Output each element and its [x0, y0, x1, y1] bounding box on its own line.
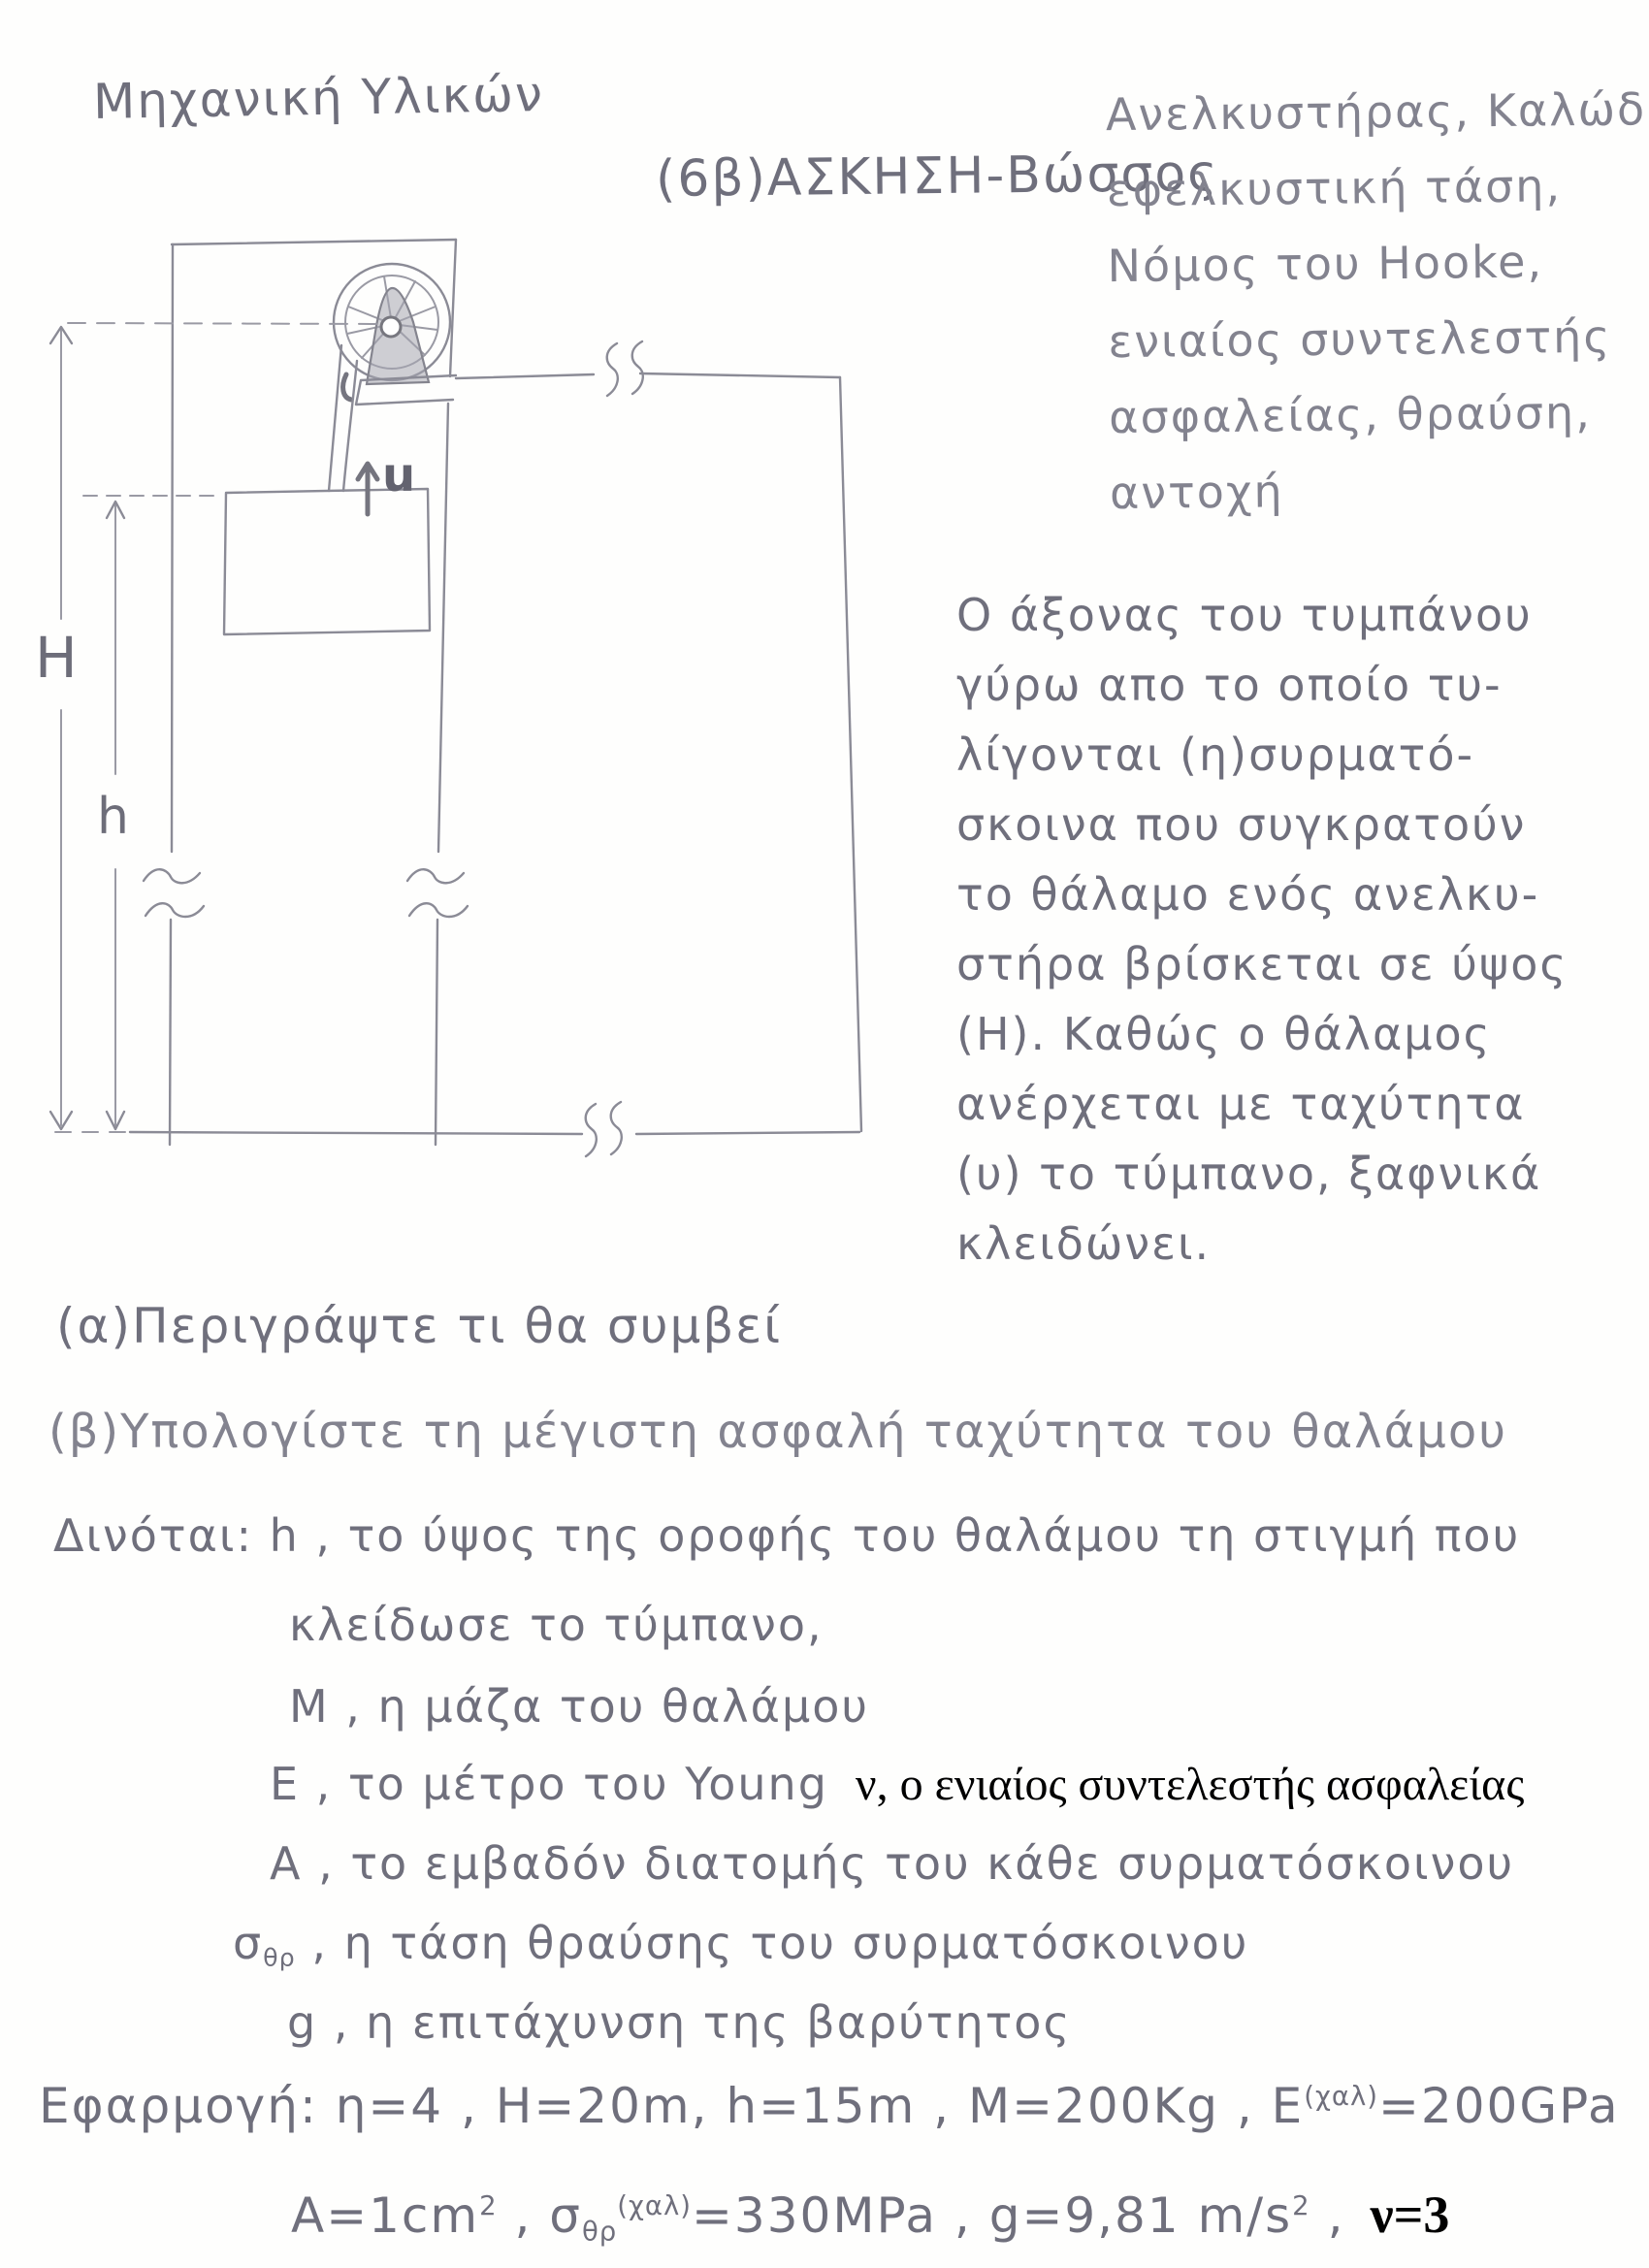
pulley-bracket — [367, 288, 429, 384]
sigma-description: , η τάση θραύσης του συρματόσκοινου — [296, 1917, 1249, 1969]
description-line: λίγονται (η)συρματό- — [956, 720, 1568, 790]
given-line-M: Μ , η μάζα του θαλάμου — [289, 1680, 869, 1733]
E-superscript-steel: (χαλ) — [1304, 2081, 1378, 2112]
question-a: (α)Περιγράψτε τι θα συμβεί — [56, 1298, 782, 1354]
break-mark-right-wall — [407, 869, 464, 883]
rope-curl — [343, 374, 351, 400]
course-title: Μηχανική Υλικών — [93, 66, 545, 130]
description-line: σκοινα που συγκρατούν — [956, 790, 1568, 859]
description-line: (υ) το τύμπανο, ξαφνικά — [956, 1139, 1568, 1209]
break-mark-left-wall — [144, 869, 200, 883]
pulley-wheel — [334, 264, 456, 405]
application-line-1: Εφαρμογή: η=4 , Η=20m, h=15m , Μ=200Kg ,… — [39, 2078, 1620, 2134]
keywords-line: ασφαλείας, θραύση, — [1109, 373, 1649, 455]
description-line: το θάλαμο ενός ανελκυ- — [956, 859, 1568, 929]
given-line-A: Α , το εμβαδόν διατομής του κάθε συρματό… — [270, 1837, 1514, 1890]
velocity-label-u: u — [382, 448, 417, 502]
sigma-subscript: θρ — [263, 1944, 296, 1972]
nu-value-typed: ν=3 — [1370, 2186, 1449, 2244]
keywords-line: ενιαίος συντελεστής — [1108, 298, 1649, 379]
keywords-block: Ανελκυστήρας, Καλώδιο εφελκυστική τάση, … — [1106, 71, 1649, 531]
sigma-value-superscript: (χαλ) — [617, 2190, 692, 2221]
sigma-g-values: =330MPa , g=9,81 m∕s — [692, 2187, 1292, 2244]
description-line: κλειδώνει. — [956, 1209, 1568, 1279]
worksheet-page: H h u Μηχανική Υλικών (6β)ΑΣΚΗΣΗ-Βώσσος … — [0, 0, 1649, 2268]
application-values-1: Εφαρμογή: η=4 , Η=20m, h=15m , Μ=200Kg ,… — [39, 2078, 1304, 2134]
hoisting-cables — [329, 345, 357, 491]
keywords-line: Νόμος του Hooke, — [1107, 222, 1649, 304]
pulley-hub — [381, 317, 401, 337]
dimension-arrow-H — [50, 327, 72, 1129]
given-line-E: Ε , το μέτρο του Youngν, ο ενιαίος συντε… — [270, 1758, 1524, 1811]
elevator-car — [224, 489, 430, 634]
area-value: Α=1cm — [291, 2187, 479, 2244]
sigma-symbol: σ — [233, 1917, 263, 1969]
sigma-value-prefix: , σ — [498, 2187, 582, 2244]
description-line: ανέρχεται με ταχύτητα — [956, 1069, 1568, 1139]
keywords-line: Ανελκυστήρας, Καλώδιο — [1106, 71, 1649, 152]
given-line-h2: κλείδωσε το τύμπανο, — [289, 1599, 824, 1651]
building-outline — [55, 341, 861, 1156]
keywords-line: αντοχή — [1110, 449, 1649, 531]
break-mark-ground — [586, 1104, 597, 1156]
break-mark-top-line — [607, 343, 618, 396]
dimension-label-h: h — [97, 788, 131, 846]
given-E-handwritten: Ε , το μέτρο του Young — [270, 1758, 828, 1810]
trailing-comma: , — [1310, 2187, 1345, 2244]
given-line-sigma: σθρ , η τάση θραύσης του συρματόσκοινου — [233, 1917, 1248, 1972]
question-b: (β)Υπολογίστε τη μέγιστη ασφαλή ταχύτητα… — [48, 1405, 1507, 1459]
area-exponent: 2 — [479, 2190, 498, 2221]
seconds-exponent: 2 — [1292, 2190, 1310, 2221]
given-line-g: g , η επιτάχυνση της βαρύτητος — [287, 1996, 1071, 2049]
application-line-2: Α=1cm2 , σθρ(χαλ)=330MPa , g=9,81 m∕s2 ,… — [291, 2185, 1449, 2247]
problem-description: Ο άξονας του τυμπάνου γύρω απο το οποίο … — [956, 580, 1568, 1279]
description-line: (Η). Καθώς ο θάλαμος — [956, 999, 1568, 1069]
sigma-value-subscript: θρ — [582, 2216, 617, 2247]
keywords-line: εφελκυστική τάση, — [1106, 146, 1649, 228]
description-line: Ο άξονας του τυμπάνου — [956, 580, 1568, 650]
axis-dashed-line — [68, 323, 382, 324]
given-nu-typed-note: ν, ο ενιαίος συντελεστής ασφαλείας — [856, 1759, 1524, 1810]
given-line-h: Δινόται: h , το ύψος της οροφής του θαλά… — [53, 1509, 1520, 1562]
description-line: στήρα βρίσκεται σε ύψος — [956, 929, 1568, 999]
dimension-label-H: H — [35, 625, 80, 691]
application-values-1b: =200GPa — [1378, 2078, 1620, 2134]
description-line: γύρω απο το οποίο τυ- — [956, 650, 1568, 720]
